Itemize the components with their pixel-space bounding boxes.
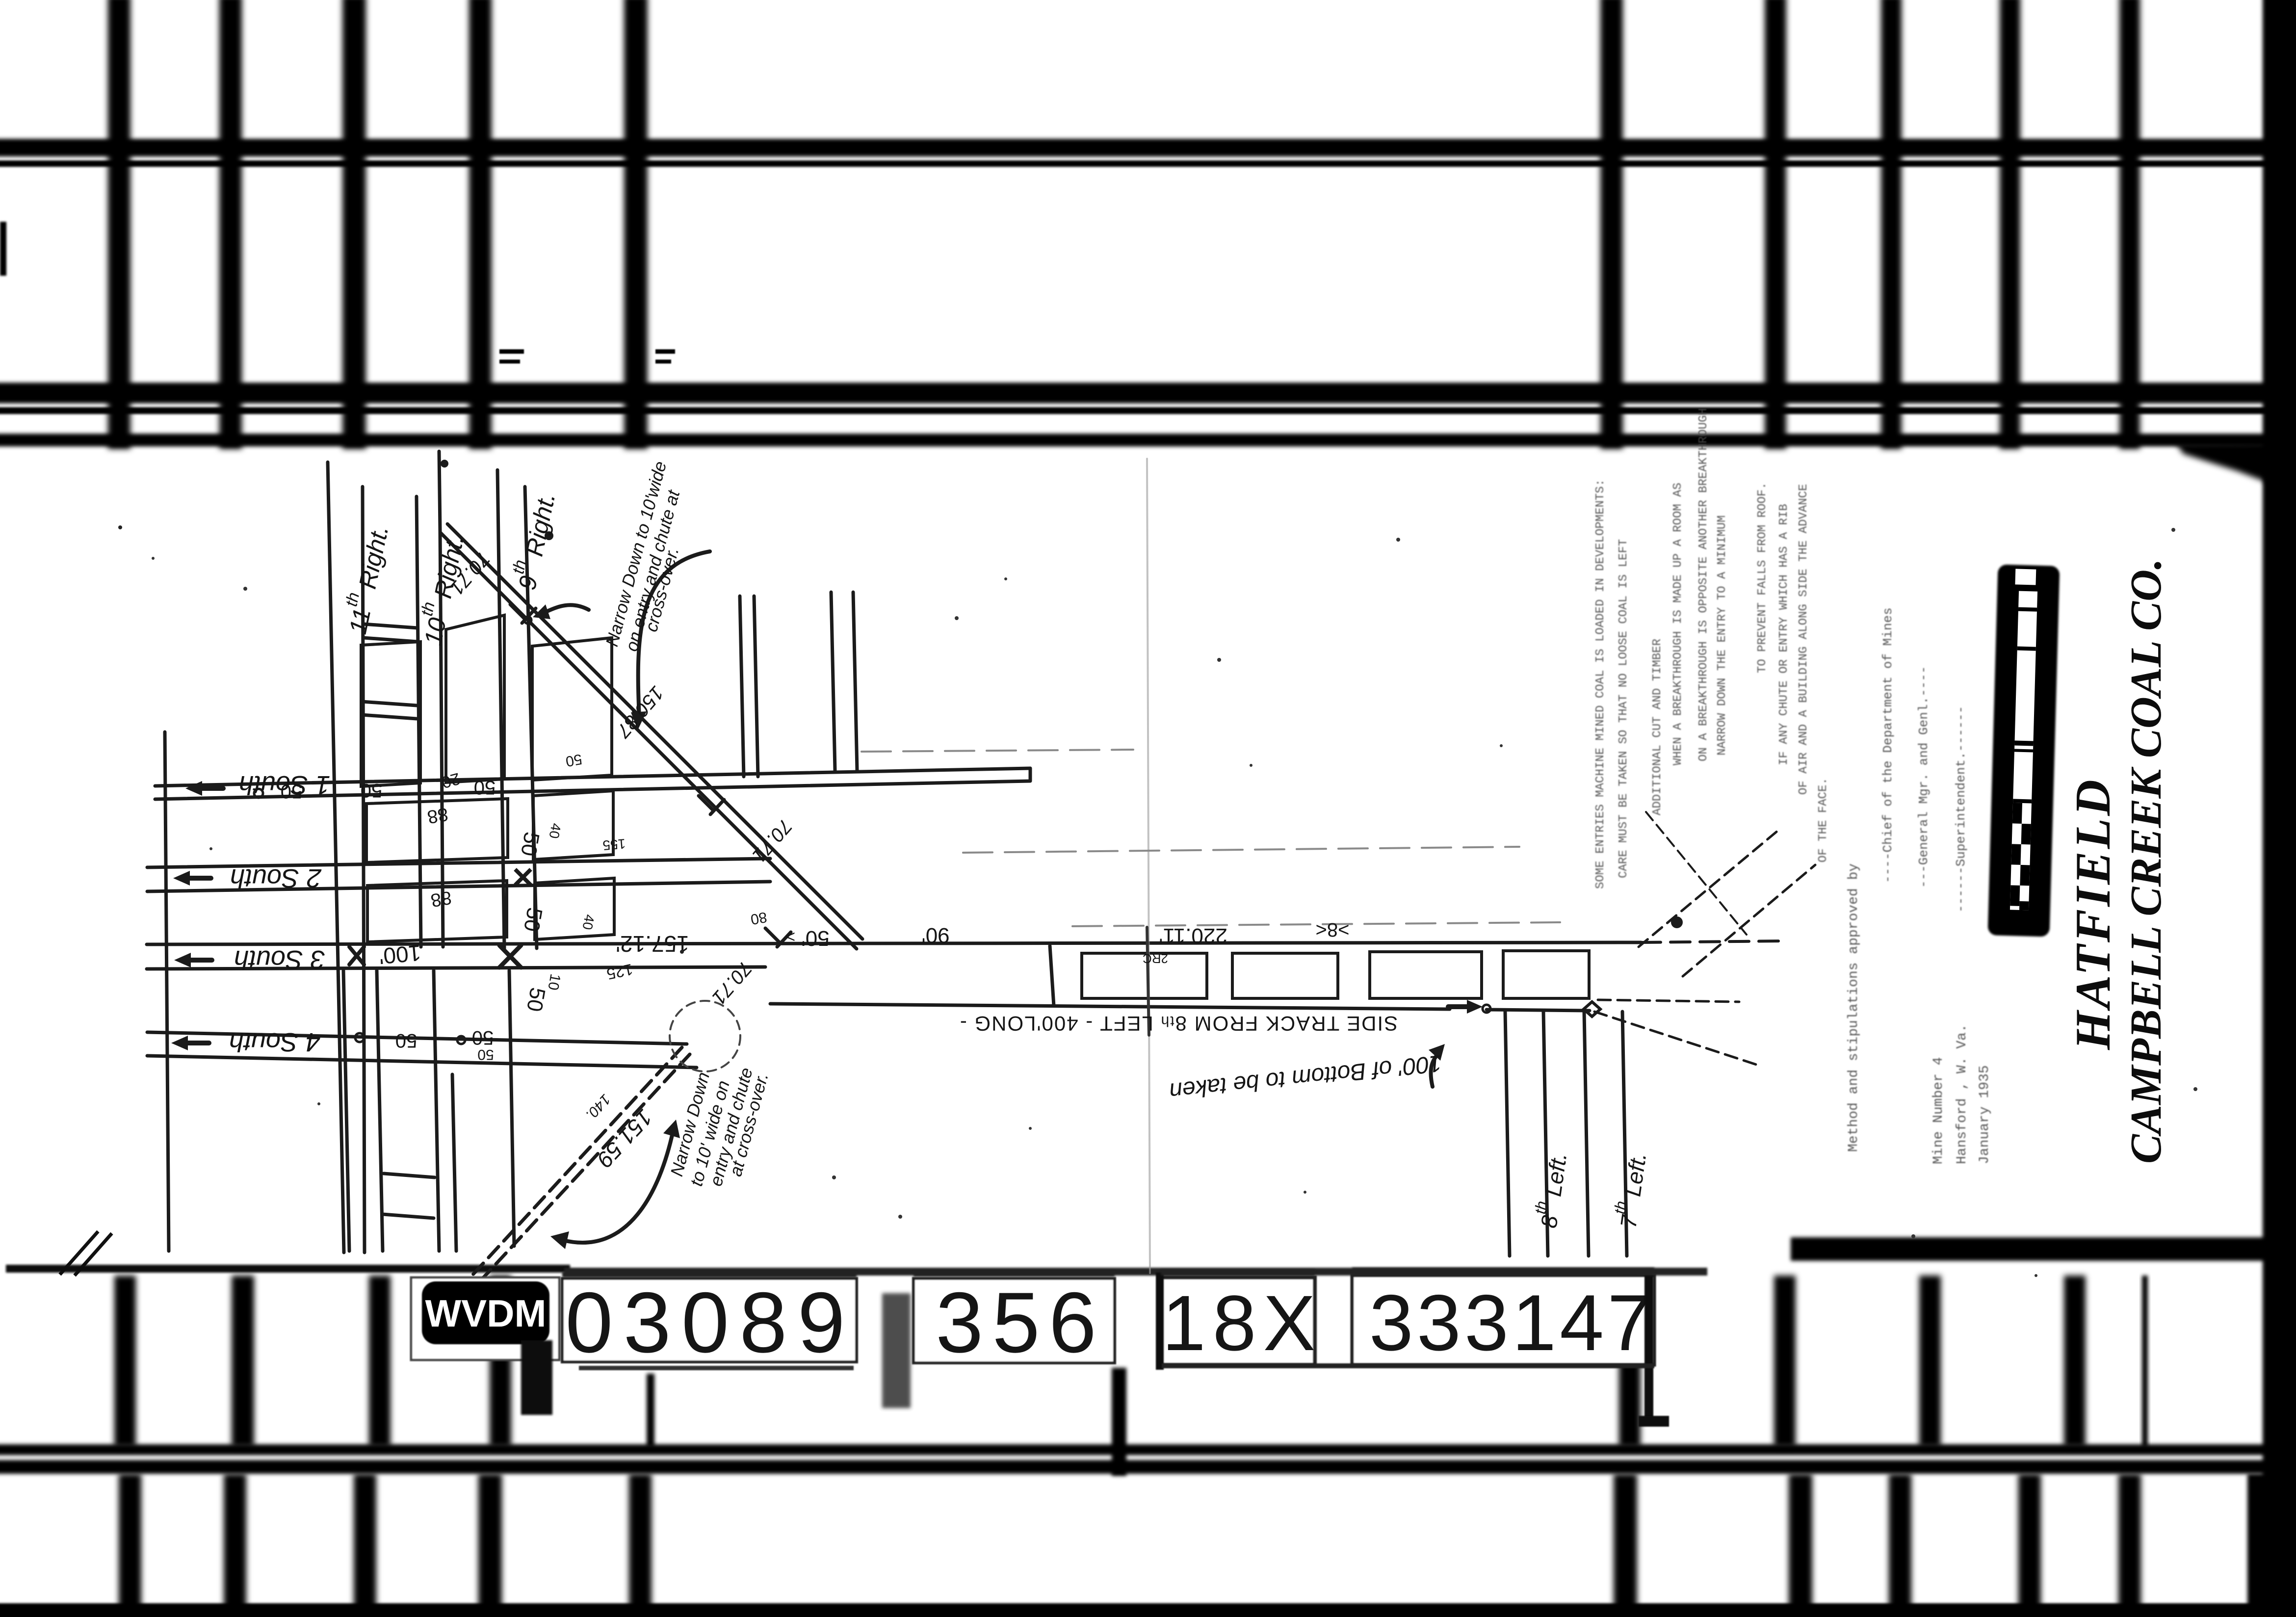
svg-text:333147: 333147 (1369, 1278, 1655, 1367)
svg-text:SOME ENTRIES MACHINE MINED COA: SOME ENTRIES MACHINE MINED COAL IS LOADE… (1594, 479, 1607, 889)
svg-text:80: 80 (749, 909, 768, 927)
svg-text:HATFIELD: HATFIELD (2065, 777, 2121, 1050)
svg-text:>8<: >8< (1316, 919, 1350, 940)
svg-text:2RC: 2RC (1143, 951, 1168, 966)
svg-text:OF THE FACE.: OF THE FACE. (1817, 778, 1830, 862)
svg-text:18X: 18X (1162, 1279, 1323, 1367)
svg-text:50: 50 (519, 906, 547, 934)
svg-text:ADDITIONAL CUT AND TIMBER: ADDITIONAL CUT AND TIMBER (1651, 639, 1664, 815)
svg-text:50: 50 (395, 1030, 417, 1051)
svg-text:50: 50 (474, 777, 496, 798)
svg-text:January 1935: January 1935 (1977, 1065, 1992, 1164)
svg-text:ON A BREAKTHROUGH IS OPPOSITE: ON A BREAKTHROUGH IS OPPOSITE ANOTHER BR… (1697, 408, 1710, 761)
svg-text:WVDM: WVDM (425, 1292, 547, 1335)
svg-text:03089: 03089 (565, 1275, 856, 1371)
svg-text:88: 88 (429, 887, 453, 911)
svg-text:356: 356 (936, 1275, 1105, 1371)
svg-text:2 South: 2 South (230, 863, 322, 893)
svg-text:SIDE TRACK FROM 8th LEFT - 400: SIDE TRACK FROM 8th LEFT - 400'LONG - (959, 1012, 1398, 1035)
svg-text:IF ANY CHUTE OR ENTRY WHICH HA: IF ANY CHUTE OR ENTRY WHICH HAS A RIB (1777, 504, 1791, 765)
svg-text:50: 50 (361, 780, 383, 801)
svg-text:40: 40 (579, 913, 597, 931)
svg-text:TO PREVENT FALLS FROM ROOF.: TO PREVENT FALLS FROM ROOF. (1756, 482, 1769, 673)
svg-text:157.12': 157.12' (616, 931, 689, 957)
svg-text:88: 88 (426, 803, 450, 827)
svg-text:Mine Number 4: Mine Number 4 (1931, 1057, 1946, 1164)
svg-text:220.11': 220.11' (1159, 924, 1227, 948)
svg-text:40: 40 (546, 822, 564, 840)
svg-text:CARE MUST BE TAKEN SO THAT NO: CARE MUST BE TAKEN SO THAT NO LOOSE COAL… (1617, 539, 1630, 878)
svg-text:OF AIR AND A BUILDING ALONG SI: OF AIR AND A BUILDING ALONG SIDE THE ADV… (1797, 484, 1810, 795)
svg-text:50: 50 (472, 1027, 494, 1048)
svg-text:50: 50 (516, 830, 544, 858)
svg-text:WHEN A BREAKTHROUGH IS MADE UP: WHEN A BREAKTHROUGH IS MADE UP A ROOM AS (1671, 483, 1685, 765)
svg-text:Method and stipulations approv: Method and stipulations approved by (1846, 863, 1861, 1152)
svg-text:NARROW DOWN THE ENTRY TO A MIN: NARROW DOWN THE ENTRY TO A MINIMUM (1716, 515, 1729, 756)
svg-text:50: 50 (477, 1046, 494, 1063)
svg-text:10: 10 (545, 972, 563, 991)
svg-text:---General Mgr. and Genl.----: ---General Mgr. and Genl.---- (1916, 666, 1931, 888)
svg-text:----Chief of the Department of: ----Chief of the Department of Mines (1880, 607, 1895, 883)
svg-text:------Superintendent.------: ------Superintendent.------ (1954, 706, 1968, 913)
svg-text:100': 100' (378, 940, 422, 969)
svg-text:90': 90' (921, 923, 949, 947)
svg-text:Hansford , W. Va.: Hansford , W. Va. (1955, 1024, 1970, 1164)
svg-text:50: 50 (281, 781, 303, 802)
svg-text:155: 155 (602, 836, 626, 853)
svg-text:3 South: 3 South (234, 945, 325, 974)
svg-text:50: 50 (522, 986, 550, 1014)
svg-text:4 South: 4 South (229, 1027, 320, 1057)
svg-text:50: 50 (564, 751, 583, 769)
svg-text:CAMPBELL CREEK COAL CO.: CAMPBELL CREEK COAL CO. (2122, 558, 2170, 1164)
